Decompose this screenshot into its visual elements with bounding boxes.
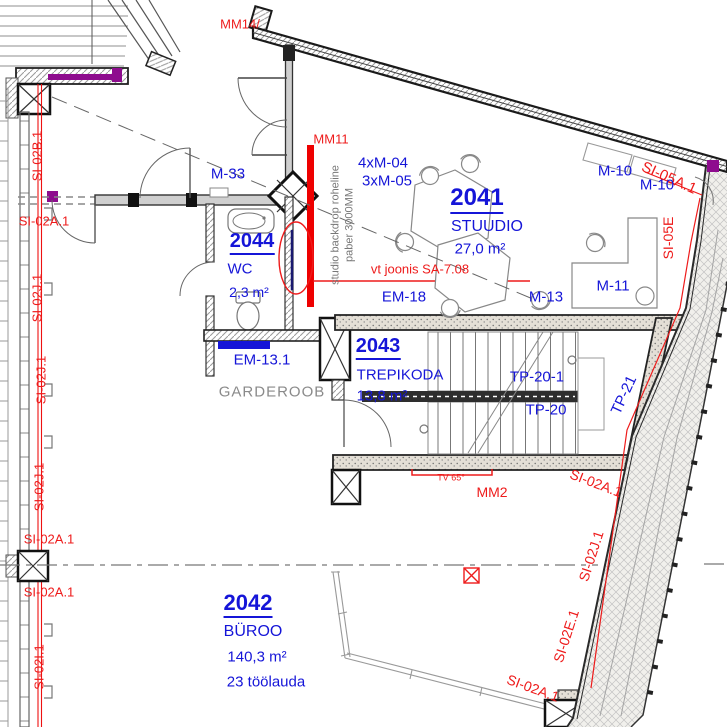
west-wall-column	[6, 551, 48, 581]
label-m10-1: M-10	[598, 164, 632, 179]
room-2042-area: 140,3 m²	[227, 650, 286, 665]
label-tp201: TP-20-1	[510, 370, 564, 385]
room-2043-area: 13,8 m²	[357, 389, 408, 404]
label-si02j1-left-3: SI-02J.1	[33, 463, 46, 511]
em-13-1-bar	[218, 341, 270, 349]
label-m11: M-11	[596, 279, 629, 294]
label-si02j1-left-1: SI-02J.1	[31, 274, 44, 322]
label-em18: EM-18	[382, 290, 426, 305]
label-si02a1-left-2: SI-02A.1	[24, 533, 75, 546]
room-2044-number: 2044	[230, 231, 275, 255]
floor-plan-geometry	[0, 0, 727, 727]
desk-m11	[572, 218, 657, 308]
room-2042-number: 2042	[224, 592, 273, 618]
office-marker-box	[464, 568, 479, 583]
label-m05: 3xM-05	[362, 174, 412, 189]
label-m33: M-33	[211, 167, 245, 182]
label-vt-joonis: vt joonis SA-7.08	[371, 263, 469, 276]
floor-plan-canvas: MM14/ MM11 vt joonis SA-7.08 TV 65° MM2 …	[0, 0, 727, 727]
label-si02b1: SI-02B.1	[31, 131, 44, 182]
exterior-stair	[0, 0, 128, 66]
label-si05e: SI-05E	[661, 217, 675, 260]
room-2041-number: 2041	[450, 186, 503, 214]
room-2042-workstations: 23 töölauda	[227, 675, 305, 690]
room-2041-name: STUUDIO	[451, 219, 523, 235]
exterior-ramp-lines	[108, 0, 180, 64]
northwest-wall	[6, 68, 128, 118]
corridor-wall	[238, 45, 295, 197]
label-backdrop-2: paber 3000MM	[345, 188, 356, 262]
room-2044-name: WC	[228, 262, 253, 277]
label-si02a1-left-1: SI-02A.1	[19, 215, 70, 228]
label-backdrop-1: studio backdrop roheline	[331, 165, 342, 285]
label-m04: 4xM-04	[358, 156, 408, 171]
label-mm11: MM11	[313, 133, 348, 146]
label-si02j1-left-2: SI-02J.1	[35, 356, 48, 404]
room-2042-name: BÜROO	[224, 624, 283, 640]
room-2043-number: 2043	[356, 336, 401, 360]
label-si02a1-left-3: SI-02A.1	[24, 586, 75, 599]
label-m10-2: M-10	[640, 178, 674, 193]
room-2043-name: TREPIKODA	[357, 368, 444, 383]
label-tp20: TP-20	[526, 403, 567, 418]
label-em131: EM-13.1	[234, 353, 291, 368]
label-mm2: MM2	[476, 485, 507, 499]
chair	[459, 153, 482, 174]
label-si02i1: SI-02I.1	[33, 644, 46, 690]
label-m13: M-13	[529, 290, 563, 305]
label-tv65: TV 65°	[437, 474, 465, 483]
room-2044-area: 2,3 m²	[229, 285, 269, 299]
stair-south-column	[332, 470, 360, 504]
label-garderoob: GARDEROOB	[219, 385, 326, 400]
north-diagonal-wall	[249, 6, 727, 172]
room-2041-area: 27,0 m²	[455, 242, 506, 257]
chair	[582, 229, 609, 256]
label-mm14: MM14/	[220, 18, 260, 31]
